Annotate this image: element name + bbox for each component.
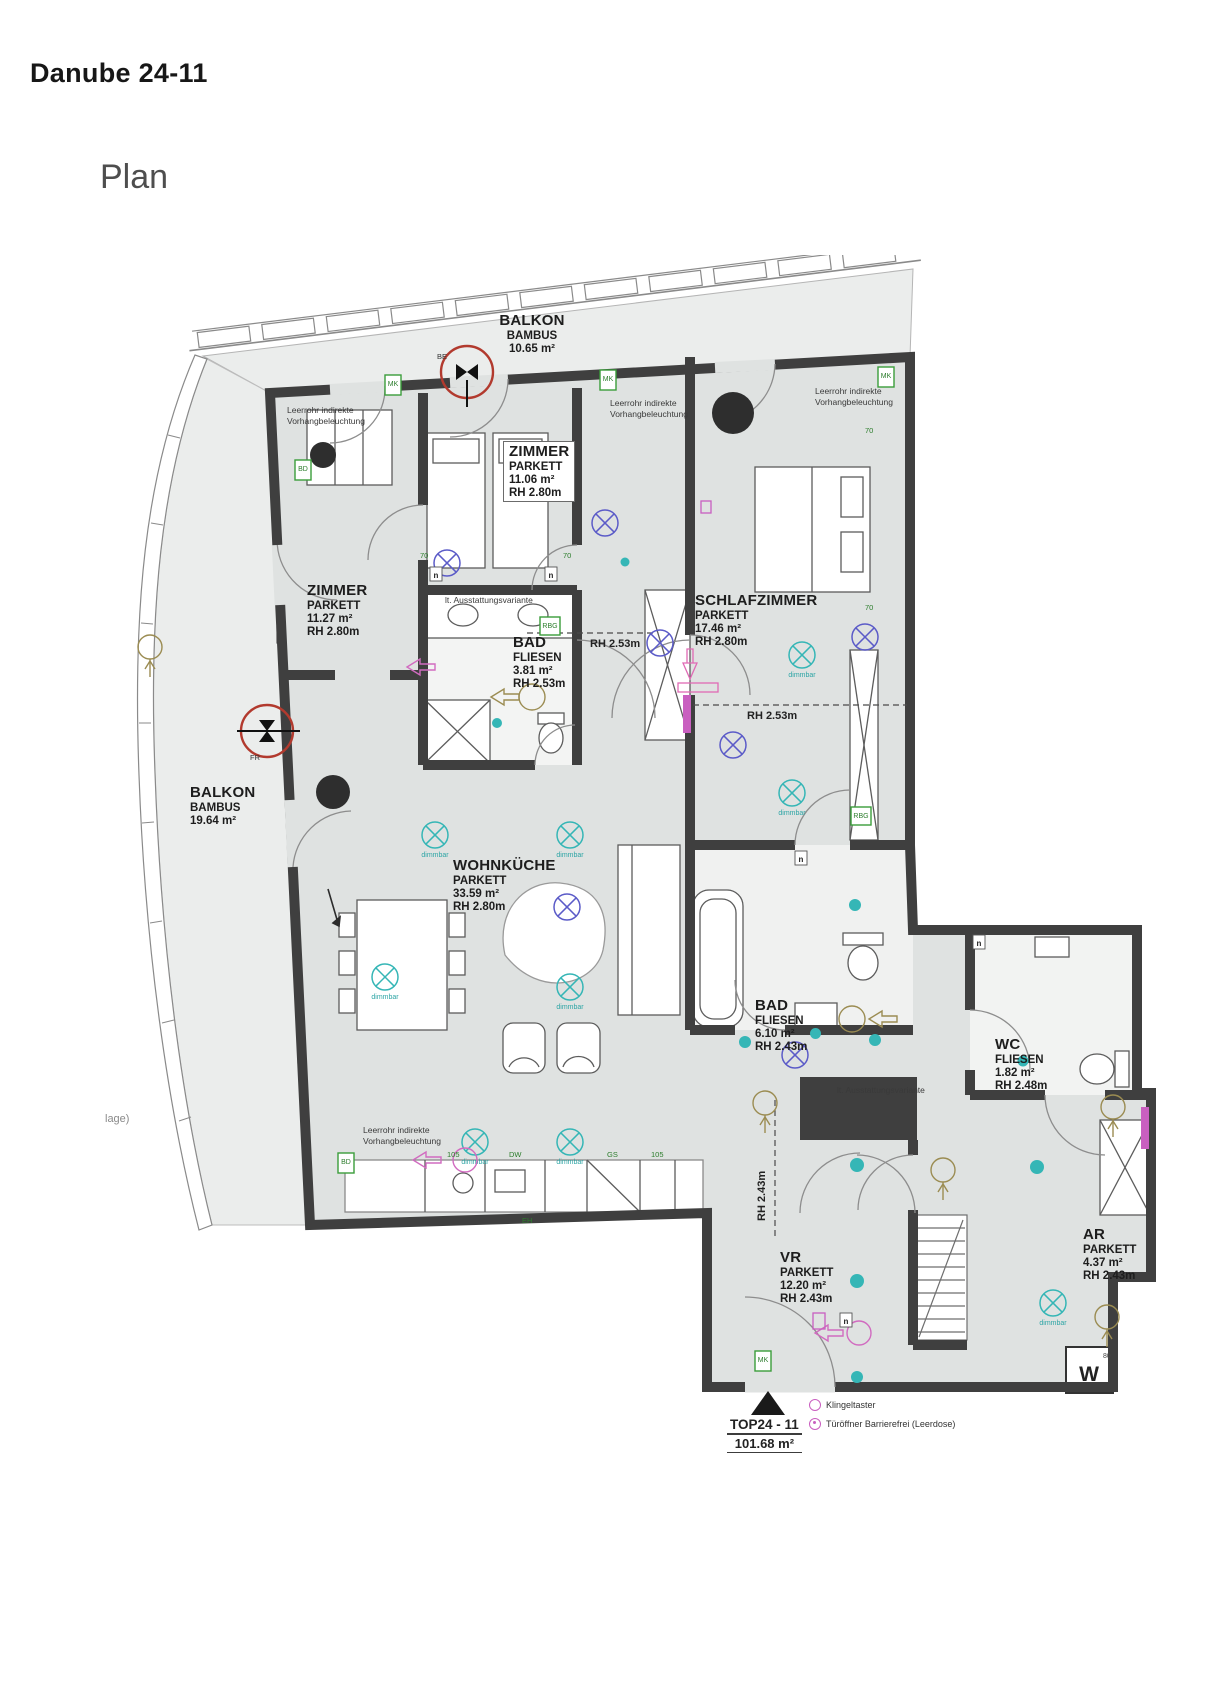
tag-bd: BD xyxy=(341,1159,351,1166)
tag-105: 105 xyxy=(447,1150,460,1159)
room-label-bad-klein: BAD FLIESEN 3.81 m² RH 2.53m xyxy=(513,635,565,690)
room-floor: BAMBUS xyxy=(190,802,255,815)
room-height: RH 2.80m xyxy=(509,487,569,500)
room-label-wohnkueche: WOHNKÜCHE PARKETT 33.59 m² RH 2.80m xyxy=(453,858,556,913)
room-area: 1.82 m² xyxy=(995,1067,1047,1080)
rh-243-vertical: RH 2.43m xyxy=(756,1171,768,1221)
note-rh253: RH 2.53m xyxy=(747,710,797,722)
room-name: BALKON xyxy=(467,313,597,330)
unit-summary: TOP24 - 11 101.68 m² xyxy=(727,1417,802,1453)
tag-mk: MK xyxy=(758,1357,769,1364)
doorbell-icon xyxy=(809,1399,821,1411)
washbasin xyxy=(1035,937,1069,957)
room-name: BAD xyxy=(755,998,807,1015)
room-height: RH 2.80m xyxy=(307,626,367,639)
legend-label: Türöffner Barrierefrei (Leerdose) xyxy=(826,1419,955,1429)
tag-rbg: RBG xyxy=(853,813,868,820)
note-line: Vorhangbeleuchtung xyxy=(287,416,365,427)
room-area: 10.65 m² xyxy=(467,343,597,356)
sink xyxy=(453,1173,473,1193)
room-label-zimmer-a: ZIMMER PARKETT 11.06 m² RH 2.80m xyxy=(503,441,575,502)
tag-n: n xyxy=(549,571,554,580)
tag-bd: BD xyxy=(298,466,308,473)
room-height: RH 2.43m xyxy=(1083,1270,1136,1283)
tag-n: n xyxy=(844,1317,849,1326)
room-area: 4.37 m² xyxy=(1083,1257,1136,1270)
room-floor: BAMBUS xyxy=(467,330,597,343)
note-ausstattung: lt. Ausstattungsvariante xyxy=(445,595,533,605)
dimmbar-label: dimmbar xyxy=(556,852,584,859)
tag-n: n xyxy=(434,571,439,580)
room-label-balkon-top: BALKON BAMBUS 10.65 m² xyxy=(467,313,597,356)
tag-n: n xyxy=(799,855,804,864)
tag-70: 70 xyxy=(865,603,873,612)
room-area: 19.64 m² xyxy=(190,815,255,828)
section-heading: Plan xyxy=(100,158,168,197)
tag-70: 70 xyxy=(563,551,571,560)
page: { "page": {"title": "Danube 24-11", "hea… xyxy=(0,0,1206,1705)
room-area: 3.81 m² xyxy=(513,665,565,678)
room-floor: FLIESEN xyxy=(995,1054,1047,1067)
bed-double xyxy=(755,467,870,592)
dimmbar-label: dimmbar xyxy=(371,994,399,1001)
room-height: RH 2.80m xyxy=(695,636,817,649)
door-contact xyxy=(1141,1107,1149,1149)
room-area: 12.20 m² xyxy=(780,1280,833,1293)
bed-single xyxy=(427,433,485,568)
dimmbar-label: dimmbar xyxy=(421,852,449,859)
page-title: Danube 24-11 xyxy=(30,58,208,89)
room-label-balkon-links: BALKON BAMBUS 19.64 m² xyxy=(190,785,255,828)
kitchen-counter xyxy=(345,1160,703,1212)
room-floor: PARKETT xyxy=(509,461,569,474)
dimmbar-label: dimmbar xyxy=(778,810,806,817)
washing-machine-size: 80 xyxy=(1103,1353,1111,1360)
room-name: BAD xyxy=(513,635,565,652)
room-label-zimmer-b: ZIMMER PARKETT 11.27 m² RH 2.80m xyxy=(307,583,367,638)
legend-label: Klingeltaster xyxy=(826,1400,876,1410)
room-name: BALKON xyxy=(190,785,255,802)
valve-tag: FR xyxy=(250,753,261,762)
room-height: RH 2.53m xyxy=(513,678,565,691)
room-area: 6.10 m² xyxy=(755,1028,807,1041)
room-name: SCHLAFZIMMER xyxy=(695,593,817,610)
shaft-stairs xyxy=(915,1215,967,1340)
legend-item: Türöffner Barrierefrei (Leerdose) xyxy=(809,1414,955,1433)
room-floor: PARKETT xyxy=(307,600,367,613)
room-height: RH 2.80m xyxy=(453,901,556,914)
dimmbar-label: dimmbar xyxy=(788,672,816,679)
valve-tag: BE xyxy=(437,352,447,361)
toilet xyxy=(1080,1051,1129,1087)
cooktop xyxy=(495,1170,525,1192)
room-floor: PARKETT xyxy=(1083,1244,1136,1257)
room-height: RH 2.48m xyxy=(995,1080,1047,1093)
plan-legend: Klingeltaster Türöffner Barrierefrei (Le… xyxy=(809,1395,955,1433)
room-height: RH 2.43m xyxy=(780,1293,833,1306)
room-floor: PARKETT xyxy=(780,1267,833,1280)
room-area: 17.46 m² xyxy=(695,623,817,636)
room-label-wc: WC FLIESEN 1.82 m² RH 2.48m xyxy=(995,1037,1047,1092)
note-line: Leerrohr indirekte xyxy=(363,1125,441,1136)
room-label-schlafzimmer: SCHLAFZIMMER PARKETT 17.46 m² RH 2.80m xyxy=(695,593,817,648)
dimmbar-label: dimmbar xyxy=(556,1004,584,1011)
tag-rbg: RBG xyxy=(542,623,557,630)
room-label-bad-gross: BAD FLIESEN 6.10 m² RH 2.43m xyxy=(755,998,807,1053)
note-line: Vorhangbeleuchtung xyxy=(610,409,688,420)
room-name: WOHNKÜCHE xyxy=(453,858,556,875)
room-height: RH 2.43m xyxy=(755,1041,807,1054)
tag-mk: MK xyxy=(603,376,614,383)
armchair xyxy=(557,1023,600,1073)
room-floor: FLIESEN xyxy=(755,1015,807,1028)
tag-gs: GS xyxy=(607,1150,618,1159)
note-leerrohr: Leerrohr indirekte Vorhangbeleuchtung xyxy=(287,405,365,426)
dimmbar-label: dimmbar xyxy=(556,1159,584,1166)
room-name: AR xyxy=(1083,1227,1136,1244)
door-opener-icon xyxy=(809,1418,821,1430)
room-floor: PARKETT xyxy=(453,875,556,888)
note-rh253: RH 2.53m xyxy=(590,638,640,650)
shower xyxy=(425,700,490,763)
tag-105: 105 xyxy=(651,1150,664,1159)
bathtub xyxy=(693,890,743,1027)
room-name: WC xyxy=(995,1037,1047,1054)
room-label-abstellraum: AR PARKETT 4.37 m² RH 2.43m xyxy=(1083,1227,1136,1282)
note-leerrohr: Leerrohr indirekte Vorhangbeleuchtung xyxy=(363,1125,441,1146)
dining-table xyxy=(339,900,465,1030)
legend-item: Klingeltaster xyxy=(809,1395,955,1414)
tag-70: 70 xyxy=(420,551,428,560)
room-area: 33.59 m² xyxy=(453,888,556,901)
note-line: Leerrohr indirekte xyxy=(287,405,365,416)
door-contact xyxy=(683,695,691,733)
room-floor: FLIESEN xyxy=(513,652,565,665)
armchair xyxy=(503,1023,545,1073)
room-name: ZIMMER xyxy=(307,583,367,600)
tag-70: 70 xyxy=(865,426,873,435)
room-area: 11.27 m² xyxy=(307,613,367,626)
floor-plan: RH 2.43m BE FR dimmbar dimmbar dimmbar d… xyxy=(95,255,1170,1490)
note-ausstattung: lt. Ausstattungsvariante xyxy=(837,1085,925,1095)
room-label-vorraum: VR PARKETT 12.20 m² RH 2.43m xyxy=(780,1250,833,1305)
tag-mk: MK xyxy=(881,373,892,380)
note-line: Leerrohr indirekte xyxy=(815,386,893,397)
tag-eh: EH xyxy=(522,1216,532,1225)
note-leerrohr: Leerrohr indirekte Vorhangbeleuchtung xyxy=(610,398,688,419)
note-line: Leerrohr indirekte xyxy=(610,398,688,409)
sofa xyxy=(618,845,680,1015)
washing-machine-label: W xyxy=(1079,1363,1099,1386)
note-line: Vorhangbeleuchtung xyxy=(363,1136,441,1147)
note-line: Vorhangbeleuchtung xyxy=(815,397,893,408)
note-leerrohr: Leerrohr indirekte Vorhangbeleuchtung xyxy=(815,386,893,407)
tag-dw: DW xyxy=(509,1150,522,1159)
room-name: VR xyxy=(780,1250,833,1267)
room-floor: PARKETT xyxy=(695,610,817,623)
entrance-marker-icon xyxy=(751,1391,785,1415)
floor-plan-drawing: RH 2.43m BE FR dimmbar dimmbar dimmbar d… xyxy=(95,255,1170,1490)
dimmbar-label: dimmbar xyxy=(1039,1320,1067,1327)
tag-n: n xyxy=(977,939,982,948)
unit-label: TOP24 - 11 xyxy=(727,1417,802,1435)
room-name: ZIMMER xyxy=(509,444,569,461)
tag-mk: MK xyxy=(388,381,399,388)
note-lage: lage) xyxy=(105,1113,129,1125)
unit-area: 101.68 m² xyxy=(727,1435,802,1453)
room-area: 11.06 m² xyxy=(509,474,569,487)
